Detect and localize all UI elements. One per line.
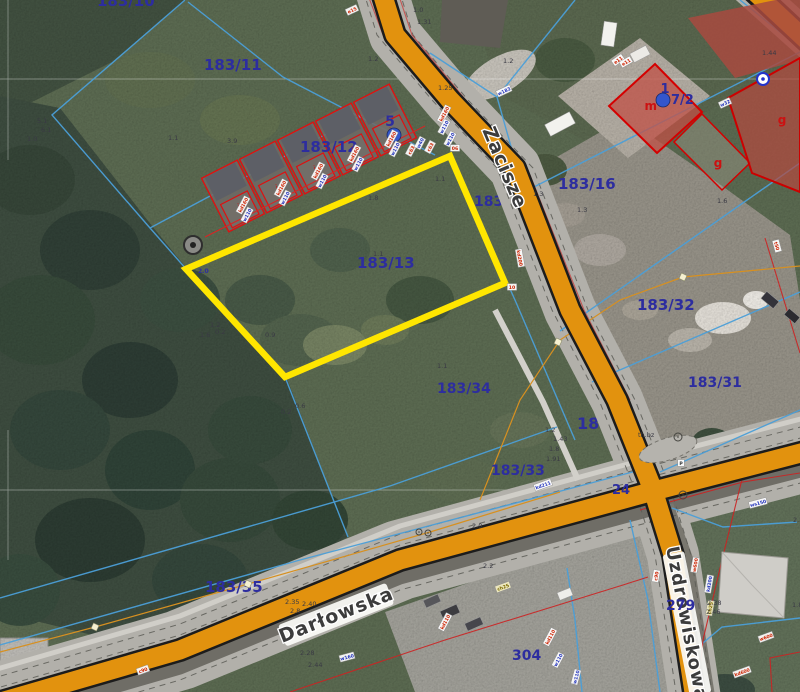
parcel-label-279: 279 xyxy=(666,598,695,614)
spot-height: 2.44 xyxy=(308,661,322,669)
spot-height: 0.2 xyxy=(215,328,225,336)
spot-height: 5.1 xyxy=(37,117,47,125)
building-label-m: m xyxy=(644,99,657,113)
spot-height: 1.0 xyxy=(27,135,37,143)
survey-point-dot xyxy=(682,494,684,496)
spot-height: 3.9 xyxy=(227,137,237,145)
spot-height: 2.2 xyxy=(483,562,493,570)
building-label-g: g xyxy=(778,113,787,127)
utility-box: P xyxy=(678,460,684,467)
gray-roof-building xyxy=(440,0,508,48)
building-label-g: g xyxy=(714,156,723,170)
spot-height: 1.8 xyxy=(368,194,378,202)
point-marker[interactable] xyxy=(656,93,670,107)
hip-roof-building xyxy=(718,552,788,618)
spot-height: 2.2 xyxy=(793,516,800,524)
spot-height: 2.8 xyxy=(290,607,300,615)
survey-point-dot xyxy=(427,532,429,534)
map-stage: 183/318 xyxy=(0,0,800,692)
parcel-label-183-31: 183/31 xyxy=(688,375,742,391)
spot-height: 2.35 xyxy=(285,598,299,606)
spot-height: 0.9 xyxy=(265,331,275,339)
svg-text:06: 06 xyxy=(452,146,458,152)
parcel-label-183-12: 183/12 xyxy=(300,138,358,156)
parcel-label-183-32: 183/32 xyxy=(637,296,695,314)
spot-height: 1.91 xyxy=(546,455,560,463)
spot-height: 1.3 xyxy=(577,206,587,214)
spot-height: 1.2 xyxy=(368,55,378,63)
utility-box: 10 xyxy=(507,284,516,291)
parcel-label-183-10: 183/10 xyxy=(97,0,155,10)
spot-height: 1.0 xyxy=(413,6,423,14)
spot-height: 1.43 xyxy=(553,435,567,443)
spot-height: 1.1 xyxy=(168,134,178,142)
map-canvas[interactable]: 183/318 xyxy=(0,0,800,692)
parcel-label-183-35: 183/35 xyxy=(205,578,263,596)
spot-height: 2.28 xyxy=(300,649,314,657)
spot-height: 2.46 xyxy=(706,608,720,616)
spot-height: 1.1 xyxy=(435,175,445,183)
spot-height: 1.6 xyxy=(717,197,727,205)
spot-height: 2.38 xyxy=(707,599,721,607)
ring-marker-dot xyxy=(761,77,765,81)
spot-height: 6.1 xyxy=(41,126,51,134)
spot-height: 1.2 xyxy=(545,426,555,434)
parcel-label-183-11: 183/11 xyxy=(204,56,262,74)
spot-height: 2.40 xyxy=(302,600,316,608)
manhole-icon-dot xyxy=(190,242,196,248)
parcel-label-183-16: 183/16 xyxy=(558,175,616,193)
building-label-7-2: 7/2 xyxy=(671,93,694,108)
parcel-label-183-33: 183/33 xyxy=(491,463,545,479)
survey-point-dot xyxy=(418,531,420,533)
building-label-2-0: 2.0 xyxy=(198,268,209,275)
spot-height: 1.44 xyxy=(762,49,776,57)
parcel-label-304: 304 xyxy=(512,648,541,664)
parcel-label-183-13: 183/13 xyxy=(357,254,415,272)
spot-height: 1.1 xyxy=(373,250,383,258)
spot-height: 0.6 xyxy=(295,402,305,410)
parcel-label-183-34: 183/34 xyxy=(437,381,491,397)
spot-height: 1.8 xyxy=(792,601,800,609)
spot-height: 1.2 xyxy=(503,57,513,65)
spot-height: 1.8 xyxy=(549,445,559,453)
spot-height: 1.1 xyxy=(437,362,447,370)
utility-box: 06 xyxy=(450,145,459,152)
spot-height: 1.25 xyxy=(438,84,452,92)
spot-height: th.bz xyxy=(638,431,655,439)
spot-height: 1.31 xyxy=(417,18,431,26)
survey-point-dot xyxy=(677,436,679,438)
parcel-label-24: 24 xyxy=(612,483,630,498)
spot-height: 1.3 xyxy=(533,190,543,198)
svg-text:10: 10 xyxy=(509,285,515,291)
spot-height: 0.2 xyxy=(281,408,291,416)
spot-height: 2.0 xyxy=(472,522,482,530)
spot-height: 1.6 xyxy=(200,331,210,339)
